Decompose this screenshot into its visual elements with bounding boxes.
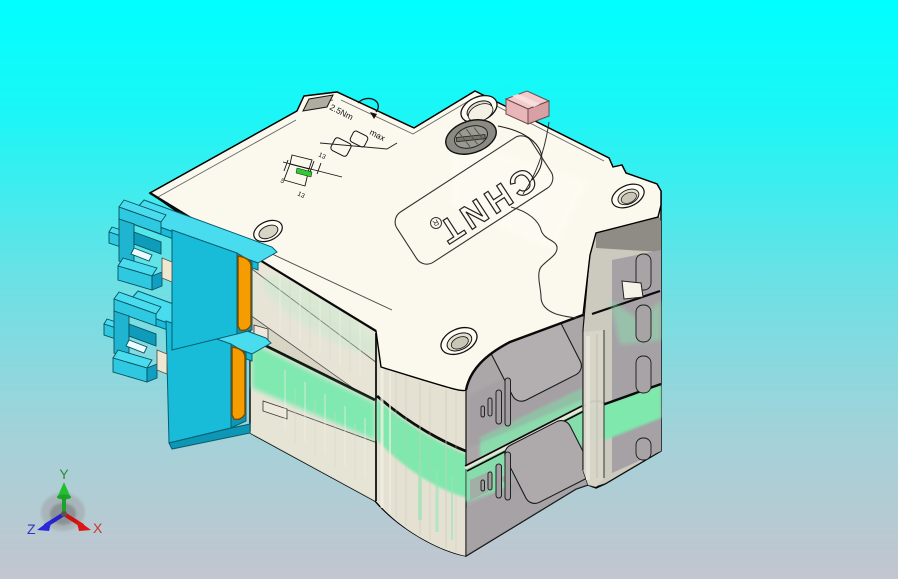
svg-text:Y: Y bbox=[59, 466, 69, 482]
svg-text:X: X bbox=[93, 520, 103, 536]
svg-text:Z: Z bbox=[27, 521, 36, 537]
